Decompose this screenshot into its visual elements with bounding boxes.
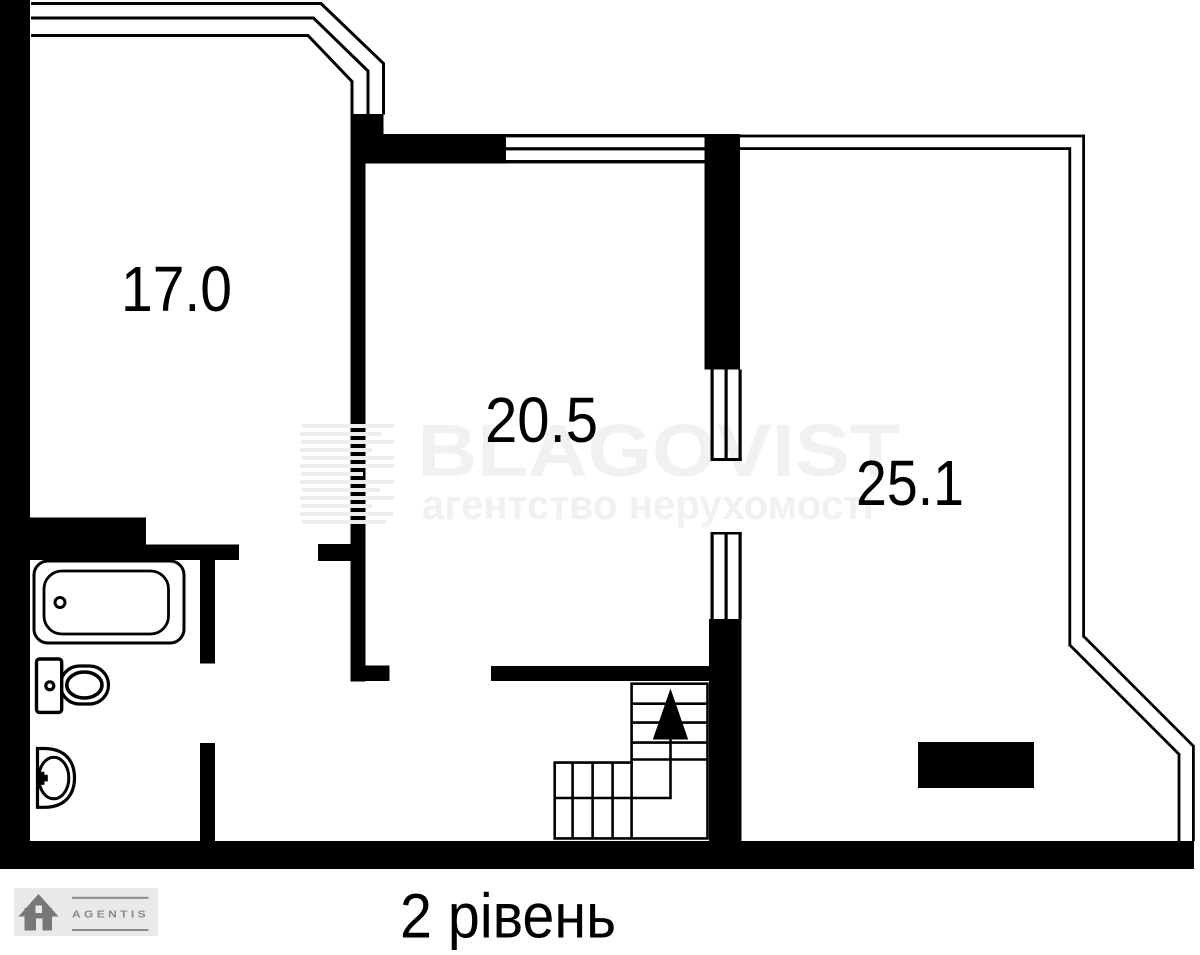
svg-text:2 рівень: 2 рівень (400, 882, 616, 951)
svg-text:AGENTIS: AGENTIS (72, 909, 149, 921)
svg-text:25.1: 25.1 (856, 447, 964, 519)
svg-text:агентство нерухомості: агентство нерухомості (422, 481, 874, 528)
svg-text:17.0: 17.0 (121, 253, 232, 325)
svg-text:20.5: 20.5 (485, 384, 598, 456)
